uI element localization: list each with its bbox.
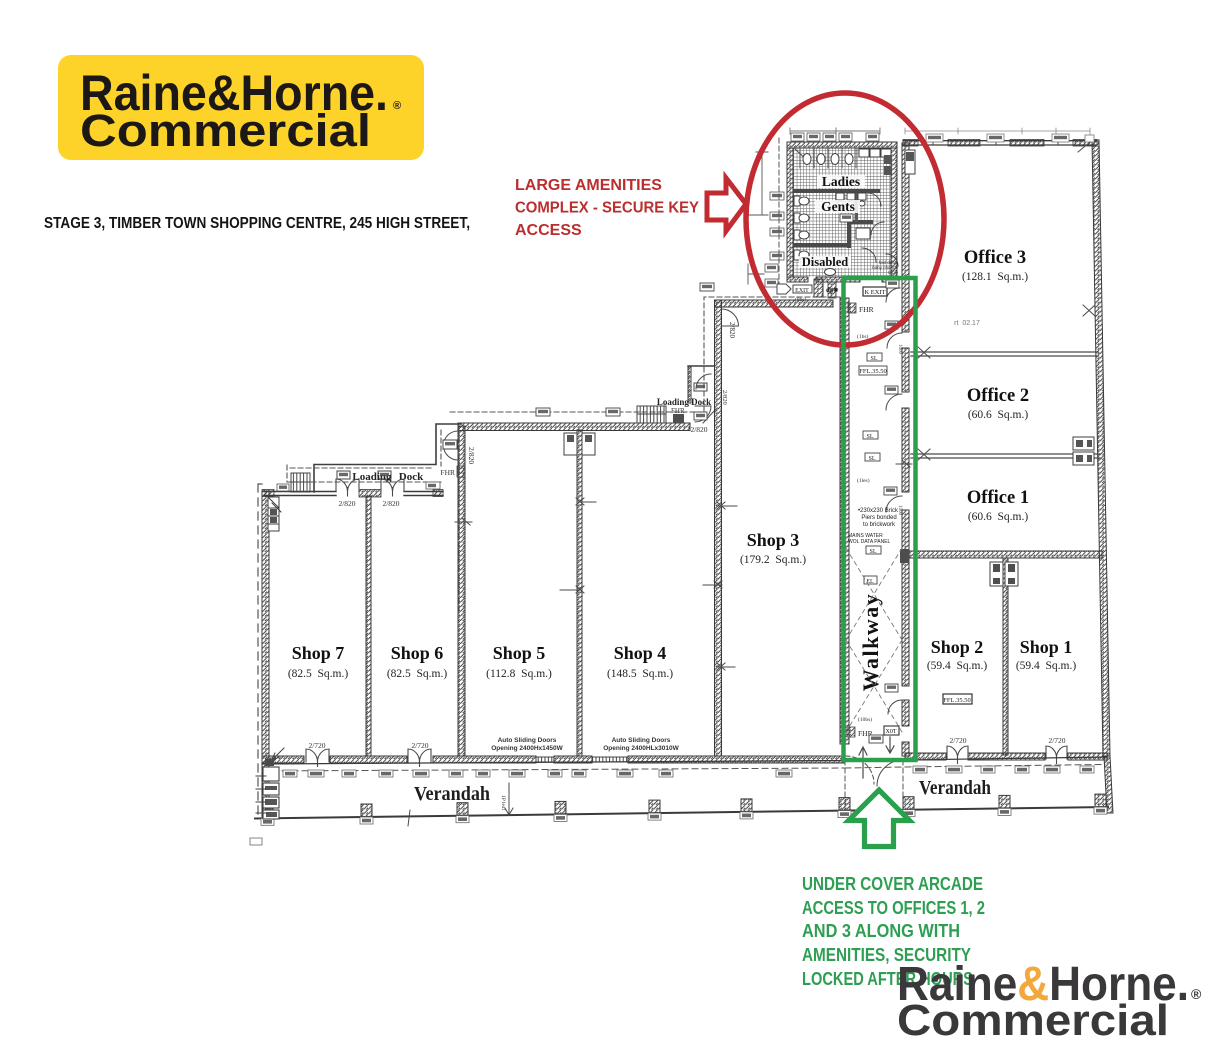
svg-text:STAGE 3, TIMBER TOWN SHOPPING: STAGE 3, TIMBER TOWN SHOPPING CENTRE, 24…	[44, 215, 470, 232]
svg-text:Shop 1: Shop 1	[1020, 637, 1073, 657]
svg-text:Shop 4: Shop 4	[614, 643, 667, 663]
svg-text:Opening 2400HLx3010W: Opening 2400HLx3010W	[603, 745, 679, 752]
svg-text:Office 3: Office 3	[964, 248, 1026, 268]
svg-text:FHR: FHR	[671, 407, 685, 415]
svg-text:(1les): (1les)	[857, 477, 870, 484]
svg-text:®: ®	[393, 100, 401, 112]
svg-text:Shop 3: Shop 3	[747, 530, 800, 550]
svg-text:1P leaf: 1P leaf	[500, 795, 507, 810]
svg-text:SL: SL	[868, 456, 875, 462]
svg-text:2/820: 2/820	[338, 499, 355, 508]
svg-text:(128.1 Sq.m.): (128.1 Sq.m.)	[962, 271, 1028, 283]
svg-text:(112.8 Sq.m.): (112.8 Sq.m.)	[486, 668, 552, 680]
svg-text:•230x230 Brick: •230x230 Brick	[858, 508, 899, 514]
svg-text:rt 02.17: rt 02.17	[954, 320, 980, 327]
svg-text:Gents: Gents	[821, 199, 855, 214]
svg-text:WOL DATA PANEL: WOL DATA PANEL	[848, 539, 891, 545]
svg-text:Disabled: Disabled	[802, 255, 849, 269]
svg-text:AND 3 ALONG WITH: AND 3 ALONG WITH	[802, 921, 960, 941]
svg-text:X0T: X0T	[886, 729, 897, 735]
svg-text:Piers bonded: Piers bonded	[861, 515, 896, 521]
svg-text:Commercial: Commercial	[80, 105, 371, 156]
svg-text:2/820: 2/820	[728, 322, 736, 338]
svg-text:Auto Sliding Doors: Auto Sliding Doors	[612, 737, 671, 744]
svg-text:(59.4 Sq.m.): (59.4 Sq.m.)	[1016, 660, 1077, 672]
svg-text:FFL.35.50: FFL.35.50	[859, 368, 886, 375]
svg-text:Office 1: Office 1	[967, 488, 1029, 508]
svg-text:(148.5 Sq.m.): (148.5 Sq.m.)	[607, 668, 673, 680]
svg-text:Auto Sliding Doors: Auto Sliding Doors	[498, 737, 557, 744]
svg-text:Walkway: Walkway	[858, 593, 883, 692]
svg-text:®: ®	[1191, 986, 1202, 1002]
svg-text:SL: SL	[866, 434, 873, 440]
svg-text:(10bs): (10bs)	[858, 716, 872, 723]
svg-text:Commercial: Commercial	[897, 996, 1169, 1045]
svg-text:1000: 1000	[897, 344, 902, 355]
svg-text:2/820: 2/820	[690, 425, 707, 434]
svg-text:FHR: FHR	[440, 468, 455, 477]
svg-text:(9bs): (9bs)	[795, 296, 806, 303]
svg-text:FHR: FHR	[859, 305, 874, 314]
svg-text:2/720: 2/720	[1048, 736, 1065, 745]
svg-text:Verandah: Verandah	[414, 783, 490, 805]
svg-text:FFL.35.50: FFL.35.50	[943, 697, 970, 704]
svg-text:(82.5 Sq.m.): (82.5 Sq.m.)	[288, 668, 349, 680]
svg-text:2/720: 2/720	[411, 741, 428, 750]
svg-text:2/820: 2/820	[721, 390, 728, 405]
svg-text:Dock: Dock	[399, 471, 424, 483]
svg-text:2/720: 2/720	[308, 741, 325, 750]
svg-text:Verandah: Verandah	[919, 777, 991, 799]
svg-text:LARGE AMENITIES: LARGE AMENITIES	[515, 177, 662, 194]
svg-text:(60.6 Sq.m.): (60.6 Sq.m.)	[968, 409, 1029, 421]
svg-text:dp■: dp■	[826, 286, 838, 294]
svg-text:Ladies: Ladies	[822, 174, 860, 189]
svg-text:2/820: 2/820	[467, 447, 476, 464]
svg-text:K EXIT: K EXIT	[864, 289, 885, 296]
svg-text:Office 2: Office 2	[967, 386, 1029, 406]
svg-text:ACCESS: ACCESS	[515, 222, 582, 239]
svg-text:Shop 6: Shop 6	[391, 643, 444, 663]
svg-text:(60.6 Sq.m.): (60.6 Sq.m.)	[968, 511, 1029, 523]
svg-text:2/820: 2/820	[382, 499, 399, 508]
svg-text:(1bs): (1bs)	[857, 333, 868, 340]
svg-text:Shop 2: Shop 2	[931, 637, 984, 657]
svg-text:(179.2 Sq.m.): (179.2 Sq.m.)	[740, 554, 806, 566]
svg-text:COMPLEX - SECURE KEY: COMPLEX - SECURE KEY	[515, 200, 699, 217]
svg-text:ACCESS TO OFFICES 1, 2: ACCESS TO OFFICES 1, 2	[802, 898, 985, 918]
svg-text:Opening 2400Hx1450W: Opening 2400Hx1450W	[491, 745, 563, 752]
svg-text:Shop 7: Shop 7	[292, 643, 345, 663]
svg-text:to brickwork: to brickwork	[863, 522, 896, 528]
svg-text:table: table	[888, 270, 898, 275]
svg-text:2/720: 2/720	[949, 736, 966, 745]
svg-text:SL: SL	[870, 356, 877, 362]
svg-text:Shop 5: Shop 5	[493, 643, 546, 663]
svg-text:EXIT: EXIT	[795, 288, 809, 294]
svg-text:UNDER COVER ARCADE: UNDER COVER ARCADE	[802, 874, 983, 894]
svg-text:(59.4 Sq.m.): (59.4 Sq.m.)	[927, 660, 988, 672]
svg-text:SL: SL	[869, 549, 876, 555]
svg-text:(82.5 Sq.m.): (82.5 Sq.m.)	[387, 668, 448, 680]
